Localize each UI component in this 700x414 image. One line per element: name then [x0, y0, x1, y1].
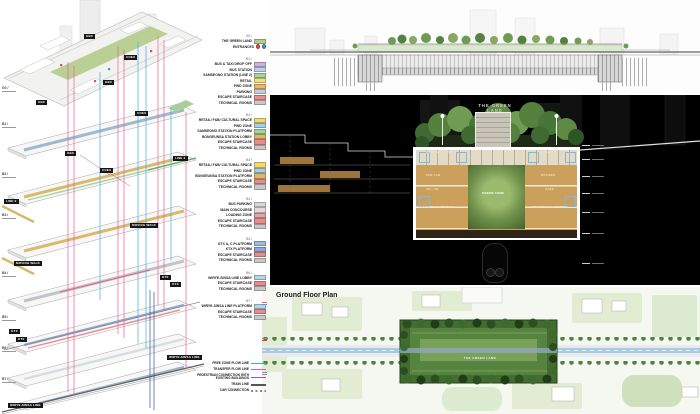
level-label-b2: B2 / [2, 172, 16, 178]
legend-label: BONGEUNSA STATION PLATFORM [195, 174, 252, 178]
legend-swatch [254, 67, 266, 72]
legend-label: ESCAPE STAIRCASE [218, 281, 252, 285]
legend-swatch [254, 173, 266, 178]
flow-line-swatch [251, 377, 266, 378]
legend-swatch [254, 168, 266, 173]
green-land-title-line1: THE GREEN [478, 103, 511, 108]
legend-swatch [254, 84, 266, 89]
legend-swatch [254, 213, 266, 218]
tag-moving-walk-2: MOVING WALK [14, 261, 42, 266]
legend-label: RETAIL/ F&B/ CULTURAL SPACE [199, 118, 252, 122]
plan-center-label: THE GREEN LAND [452, 356, 508, 360]
tag-gbc-4: GBC [65, 151, 76, 156]
legend-group-header: G0 / [194, 34, 252, 38]
plan-edge-tick [262, 304, 267, 305]
tag-coex-3: COEX [100, 168, 113, 173]
legend-swatch [254, 134, 266, 139]
tunnel-tube [486, 268, 495, 277]
flow-line-legend: FREE ZONE FLOW LINE TRANSFER FLOW LINE P… [188, 362, 266, 393]
legend-label: WIRYE-SINSA LINE LOBBY [208, 276, 252, 280]
level-label-b4: B4 / [2, 271, 16, 277]
legend-item: ESCAPE STAIRCASE [194, 281, 266, 285]
flow-label: FREE ZONE FLOW LINE [193, 362, 249, 366]
room-label-bongeunsa-station: BONGEUNSA STATION [532, 205, 568, 209]
legend-item: SAMSEONG STATION (LINE 2) [194, 73, 266, 77]
section-green-atrium [468, 165, 525, 229]
legend-group-header: B5 / [194, 237, 252, 241]
level-label-g0: G0 / [2, 86, 16, 92]
level-label-b5: B5 / [2, 315, 16, 321]
legend-group-header: B6 / [194, 271, 252, 275]
legend-group-b3: B3 / RETAIL/ F&B/ CULTURAL SPACE PWD ZON… [194, 158, 266, 189]
legend-item: PARKING [194, 89, 266, 93]
legend-label: GTX A, C PLATFORM [218, 242, 252, 246]
tag-line-9: LINE 9 [4, 199, 19, 204]
legend-label: SAMSEONG STATION PLATFORM [197, 129, 252, 133]
legend-item: MAIN CONCOURSE [194, 208, 266, 212]
legend-label: KTX PLATFORM [226, 247, 252, 251]
long-section-drawing [270, 0, 700, 93]
legend-item: GTX A, C PLATFORM [194, 242, 266, 246]
legend-swatch [254, 241, 266, 246]
legend-swatch [254, 218, 266, 223]
long-section-svg [270, 0, 700, 93]
existing-underground-wireframe [270, 135, 413, 193]
entrance-marker-blue [262, 44, 266, 49]
legend-item: BONGEUNSA STATION LOBBY [194, 134, 266, 138]
legend-label: WIRYE-SINSA LINE PLATFORM [201, 304, 252, 308]
legend-label: THE GREEN LAND [222, 39, 252, 43]
legend-item: WIRYE-SINSA LINE LOBBY [194, 276, 266, 280]
legend-group-b2: B2 / RETAIL/ F&B/ CULTURAL SPACE PWD ZON… [194, 113, 266, 150]
legend-group-b6: B6 / WIRYE-SINSA LINE LOBBY ESCAPE STAIR… [194, 271, 266, 291]
legend-swatch [254, 123, 266, 128]
legend-item: ESCAPE STAIRCASE [194, 219, 266, 223]
legend-item: BUS & TAXI DROP OFF [194, 62, 266, 66]
tag-gbc-1: GBC [84, 34, 95, 39]
legend-group-header: B2 / [194, 113, 252, 117]
legend-swatch [254, 62, 266, 67]
legend-item: BUS STATION [194, 68, 266, 72]
flow-legend-item: PEDESTRIAN CONNECTION WITH EXISTING BUIL… [188, 374, 266, 381]
legend-item: BUS PARKING [194, 202, 266, 206]
legend-label: RETAIL/ F&B/ CULTURAL SPACE [199, 163, 252, 167]
flow-line-swatch [251, 363, 266, 364]
legend-label: PWD ZONE [234, 84, 252, 88]
legend-item: PWD ZONE [194, 123, 266, 127]
escape-shaft-marker [456, 152, 467, 163]
legend-group-header: B4 / [194, 197, 252, 201]
legend-swatch [254, 224, 266, 229]
legend-item: WIRYE-SINSA LINE PLATFORM [194, 304, 266, 308]
legend-swatch [254, 162, 266, 167]
tag-wirye-sinsa-1: WIRYE-SINSA LINE [167, 355, 202, 360]
plan-edge-tick [262, 340, 267, 341]
legend-swatch [254, 315, 266, 320]
tag-gtx-2: GTX [9, 329, 20, 334]
legend-item: TECHNICAL ROOMS [194, 315, 266, 319]
legend-item: TECHNICAL ROOMS [194, 100, 266, 104]
legend-label: SAMSEONG STATION (LINE 2) [203, 73, 252, 77]
level-tick [592, 233, 604, 234]
legend-swatch [254, 129, 266, 134]
legend-swatch [254, 145, 266, 150]
legend-group-b4: B4 / BUS PARKING MAIN CONCOURSE LOADING … [194, 197, 266, 228]
green-land-title-line2: LAND [487, 108, 503, 113]
level-b1-slab [8, 100, 196, 159]
level-label-b6: B6 / [2, 346, 16, 352]
legend-label: ESCAPE STAIRCASE [218, 140, 252, 144]
level-tick [582, 159, 590, 160]
legend-swatch [254, 39, 266, 44]
legend-label: RETAIL [240, 79, 252, 83]
legend-item: RETAIL/ F&B/ CULTURAL SPACE [194, 163, 266, 167]
legend-item: RETAIL/ F&B/ CULTURAL SPACE [194, 118, 266, 122]
legend-label: BUS STATION [230, 68, 252, 72]
legend-swatch [254, 247, 266, 252]
tag-moving-walk-1: MOVING WALK [130, 223, 158, 228]
legend-group-b5: B5 / GTX A, C PLATFORM KTX PLATFORM ESCA… [194, 237, 266, 263]
flow-line-swatch [251, 369, 266, 370]
legend-label: ESCAPE STAIRCASE [218, 179, 252, 183]
legend-swatch [254, 252, 266, 257]
legend-item: TECHNICAL ROOMS [194, 185, 266, 189]
legend-label: TECHNICAL ROOMS [219, 315, 252, 319]
legend-swatch [254, 184, 266, 189]
tag-line-2: LINE 2 [173, 156, 188, 161]
legend-item: LOADING ZONE [194, 213, 266, 217]
legend-swatch [254, 89, 266, 94]
legend-label: BUS PARKING [229, 202, 252, 206]
room-label-green-core: GREEN CORE [482, 191, 504, 195]
room-label-ar-vr: AR - VR [426, 187, 439, 191]
legend-label: MAIN CONCOURSE [220, 208, 252, 212]
section-platform-level [416, 229, 577, 238]
level-tick [592, 193, 604, 194]
level-label-b7: B7 / [2, 377, 16, 383]
legend-label: ENTRANCES [233, 45, 254, 49]
tag-coex-1: COEX [124, 55, 137, 60]
legend-item: RETAIL [194, 79, 266, 83]
plan-edge-tick [262, 374, 267, 375]
level-tick [592, 263, 604, 264]
legend-item: ESCAPE STAIRCASE [194, 179, 266, 183]
legend-label: PWD ZONE [234, 124, 252, 128]
presentation-board: GBC COEX GBC GBC COEX GBC COEX LINE 2 LI… [0, 0, 700, 414]
level-tick [592, 159, 604, 160]
legend-item: PWD ZONE [194, 168, 266, 172]
legend-label: TECHNICAL ROOMS [219, 224, 252, 228]
entrance-markers [256, 44, 266, 49]
room-label-lounge: LOUNGE [537, 150, 551, 154]
legend-swatch [254, 258, 266, 263]
legend-swatch [254, 179, 266, 184]
tag-gbc-3: GBC [36, 100, 47, 105]
legend-group-header: B7 / [194, 299, 252, 303]
legend-label: TECHNICAL ROOMS [219, 258, 252, 262]
legend-group-header: B3 / [194, 158, 252, 162]
legend-label: TECHNICAL ROOMS [219, 287, 252, 291]
legend-label: BUS & TAXI DROP OFF [215, 62, 252, 66]
flow-legend-item: CAR CONNECTION [188, 389, 266, 393]
tag-ktx-1: KTX [160, 275, 171, 280]
legend-item: TECHNICAL ROOMS [194, 287, 266, 291]
level-tick [582, 233, 590, 234]
flow-label: CAR CONNECTION [193, 389, 249, 393]
room-label-fab-lab: FAB LAB [426, 173, 440, 177]
rail-tunnel [482, 243, 508, 283]
legend-swatch [254, 78, 266, 83]
flow-line-swatch-dashed [251, 390, 266, 391]
level-tick [582, 263, 590, 264]
level-tick [582, 212, 590, 213]
legend-swatch [254, 275, 266, 280]
tag-coex-2: COEX [135, 111, 148, 116]
legend-item: ENTRANCES [194, 45, 266, 49]
legend-label: PWD ZONE [234, 169, 252, 173]
legend-label: TECHNICAL ROOMS [219, 185, 252, 189]
legend-swatch [254, 118, 266, 123]
green-land-title: THE GREEN LAND [455, 103, 535, 114]
tag-gtx-1: GTX [170, 282, 181, 287]
legend-label: ESCAPE STAIRCASE [218, 219, 252, 223]
legend-item: ESCAPE STAIRCASE [194, 253, 266, 257]
level-tick [592, 212, 604, 213]
ground-floor-plan-svg [262, 287, 700, 414]
legend-item: TECHNICAL ROOMS [194, 224, 266, 228]
level-label-b3: B3 / [2, 213, 16, 219]
flow-legend-item: TRAIN LINE [188, 383, 266, 387]
legend-swatch [254, 286, 266, 291]
ground-floor-plan [262, 287, 700, 414]
legend-label: PARKING [237, 90, 252, 94]
tunnel-tube [495, 268, 504, 277]
room-label-samseong-station: SAMSEONG STATION [420, 205, 454, 209]
legend-item: THE GREEN LAND [194, 39, 266, 43]
legend-label: LOADING ZONE [226, 213, 252, 217]
legend-label: ESCAPE STAIRCASE [218, 95, 252, 99]
tag-ktx-2: KTX [16, 337, 27, 342]
legend-swatch [254, 309, 266, 314]
legend-item: PWD ZONE [194, 84, 266, 88]
program-legend: G0 / THE GREEN LAND ENTRANCES B1 / BUS &… [194, 34, 266, 327]
legend-item: ESCAPE STAIRCASE [194, 140, 266, 144]
night-sectional-perspective [270, 95, 700, 285]
legend-item: TECHNICAL ROOMS [194, 258, 266, 262]
green-land-park [400, 319, 557, 385]
flow-legend-item: TRANSFER FLOW LINE [188, 368, 266, 372]
legend-swatch [254, 100, 266, 105]
legend-item: TECHNICAL ROOMS [194, 145, 266, 149]
legend-swatch [254, 281, 266, 286]
legend-label: TECHNICAL ROOMS [219, 146, 252, 150]
room-label-groundscape: GROUNDSCAPE [426, 150, 452, 154]
room-label-cafe: CAFE [545, 187, 554, 191]
flow-line-swatch [251, 384, 266, 385]
legend-group-g0: G0 / THE GREEN LAND ENTRANCES [194, 34, 266, 49]
room-label-offices: OFFICES [541, 173, 555, 177]
legend-swatch [254, 73, 266, 78]
legend-swatch [254, 95, 266, 100]
legend-group-b1: B1 / BUS & TAXI DROP OFF BUS STATION SAM… [194, 57, 266, 105]
tag-wirye-sinsa-2: WIRYE-SINSA LINE [8, 403, 43, 408]
legend-swatch [254, 139, 266, 144]
legend-item: ESCAPE STAIRCASE [194, 95, 266, 99]
flow-label: TRAIN LINE [193, 383, 249, 387]
flow-label: PEDESTRIAN CONNECTION WITH EXISTING BUIL… [193, 374, 249, 381]
legend-label: TECHNICAL ROOMS [219, 101, 252, 105]
legend-swatch [254, 202, 266, 207]
legend-item: ESCAPE STAIRCASE [194, 310, 266, 314]
level-tick [592, 176, 604, 177]
level-label-b1: B1 / [2, 122, 16, 128]
level-tick [582, 176, 590, 177]
legend-item: BONGEUNSA STATION PLATFORM [194, 174, 266, 178]
level-tick [592, 145, 604, 146]
legend-group-header: B1 / [194, 57, 252, 61]
flow-label: TRANSFER FLOW LINE [193, 368, 249, 372]
legend-label: ESCAPE STAIRCASE [218, 310, 252, 314]
legend-label: ESCAPE STAIRCASE [218, 253, 252, 257]
tag-gbc-2: GBC [103, 80, 114, 85]
level-tick [582, 193, 590, 194]
plan-title: Ground Floor Plan [276, 292, 337, 299]
legend-group-b7: B7 / WIRYE-SINSA LINE PLATFORM ESCAPE ST… [194, 299, 266, 319]
flow-legend-item: FREE ZONE FLOW LINE [188, 362, 266, 366]
entrance-marker-red [256, 44, 260, 49]
legend-item: KTX PLATFORM [194, 247, 266, 251]
legend-swatch [254, 207, 266, 212]
legend-item: SAMSEONG STATION PLATFORM [194, 129, 266, 133]
level-g0-plate [4, 12, 202, 106]
legend-label: BONGEUNSA STATION LOBBY [202, 135, 252, 139]
level-tick [582, 145, 590, 146]
escape-shaft-marker [565, 152, 576, 163]
station-structure [332, 44, 648, 91]
